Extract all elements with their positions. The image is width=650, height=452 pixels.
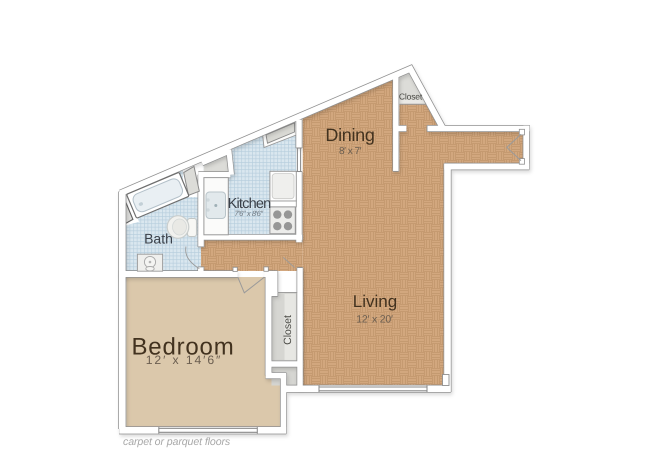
- svg-text:8′ x 7′: 8′ x 7′: [339, 146, 362, 157]
- svg-text:Living: Living: [353, 292, 397, 311]
- svg-text:7′6″ x 8′6″: 7′6″ x 8′6″: [234, 209, 263, 218]
- svg-text:Dining: Dining: [325, 125, 374, 145]
- svg-text:Closet: Closet: [399, 91, 423, 101]
- svg-text:carpet or parquet floors: carpet or parquet floors: [123, 436, 231, 448]
- svg-text:Bath: Bath: [144, 231, 173, 247]
- svg-text:12′ x 14′6″: 12′ x 14′6″: [146, 353, 223, 367]
- svg-text:12′ x 20′: 12′ x 20′: [356, 314, 393, 326]
- svg-text:Closet: Closet: [282, 315, 294, 345]
